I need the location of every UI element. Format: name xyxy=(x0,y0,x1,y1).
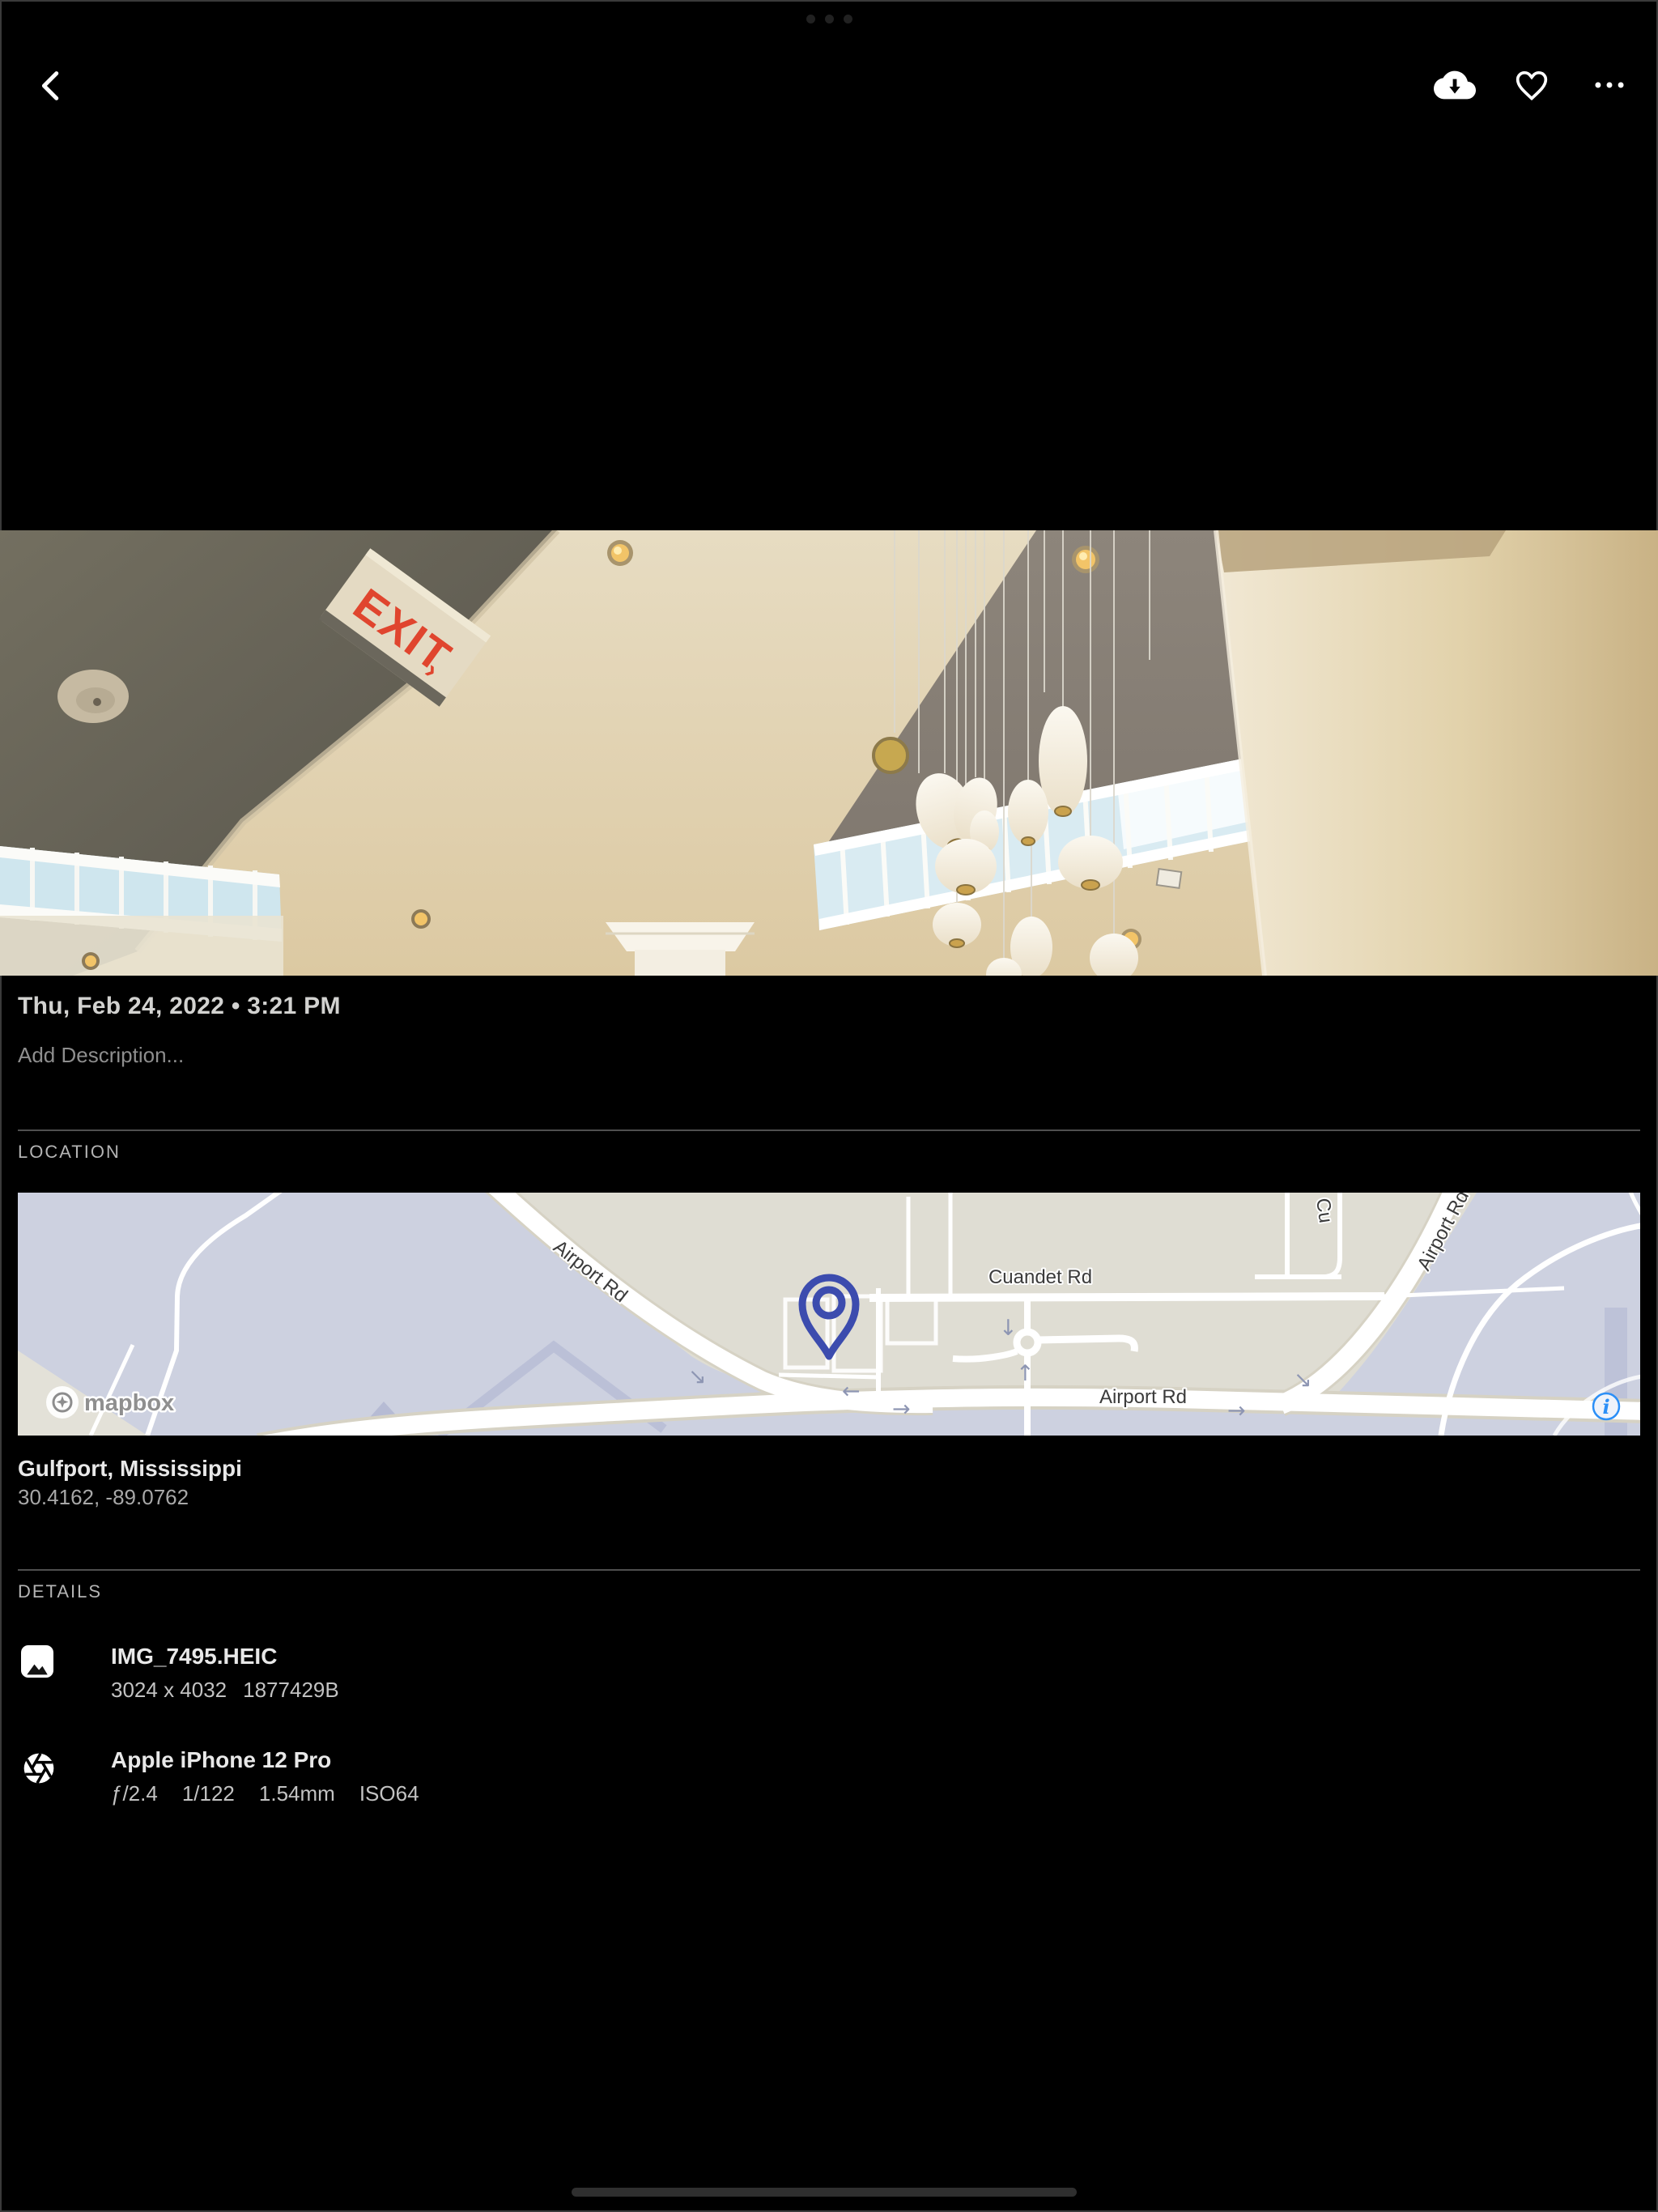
chevron-left-icon xyxy=(33,67,70,104)
details-header: DETAILS xyxy=(18,1581,102,1602)
photo-date: Thu, Feb 24, 2022 • 3:21 PM xyxy=(18,993,341,1020)
svg-text:↘: ↘ xyxy=(688,1364,707,1389)
wall-speaker xyxy=(1157,869,1182,888)
description-input[interactable]: Add Description... xyxy=(18,1043,184,1068)
svg-text:↑: ↑ xyxy=(1016,1361,1035,1386)
mapbox-logo[interactable]: mapbox xyxy=(46,1386,174,1419)
road-label: Cuandet Rd xyxy=(988,1266,1092,1288)
home-indicator[interactable] xyxy=(572,2188,1077,2197)
more-options-button[interactable] xyxy=(1580,56,1639,114)
location-coordinates: 30.4162, -89.0762 xyxy=(18,1485,189,1510)
photo-detail-screen: EXIT › xyxy=(0,0,1658,2212)
camera-name: Apple iPhone 12 Pro xyxy=(111,1747,331,1773)
atrium-column xyxy=(1216,530,1658,976)
camera-icon xyxy=(21,1750,57,1790)
svg-text:mapbox: mapbox xyxy=(84,1390,174,1416)
svg-text:↓: ↓ xyxy=(999,1316,1018,1341)
camera-aperture: ƒ/2.4 xyxy=(111,1781,158,1806)
back-button[interactable] xyxy=(23,57,81,115)
map-info-button[interactable]: i xyxy=(1593,1393,1619,1419)
location-place: Gulfport, Mississippi xyxy=(18,1456,242,1482)
camera-specs: ƒ/2.4 1/122 1.54mm ISO64 xyxy=(111,1781,419,1806)
file-size: 1877429B xyxy=(243,1678,339,1703)
ellipsis-icon xyxy=(1588,64,1630,106)
svg-text:←: ← xyxy=(842,1379,861,1404)
location-header: LOCATION xyxy=(18,1142,121,1163)
svg-text:i: i xyxy=(1602,1395,1609,1419)
location-map[interactable]: ←→ ↑↓ ↘→ ↘ Airport Rd Cuandet Rd Airport… xyxy=(18,1193,1640,1436)
divider xyxy=(18,1569,1640,1571)
camera-iso: ISO64 xyxy=(359,1781,419,1806)
road-label: Cu xyxy=(1312,1197,1337,1224)
image-file-icon xyxy=(21,1645,53,1678)
divider xyxy=(18,1129,1640,1131)
cloud-download-icon xyxy=(1434,64,1476,106)
heart-icon xyxy=(1511,64,1553,106)
ceiling-medallion xyxy=(874,738,908,772)
road-label: Airport Rd xyxy=(1099,1386,1187,1408)
svg-text:→: → xyxy=(1227,1398,1246,1423)
svg-text:↘: ↘ xyxy=(1294,1368,1312,1393)
file-meta: 3024 x 4032 1877429B xyxy=(111,1678,339,1703)
camera-shutter: 1/122 xyxy=(182,1781,235,1806)
file-dimensions: 3024 x 4032 xyxy=(111,1678,227,1703)
camera-focal-length: 1.54mm xyxy=(259,1781,335,1806)
file-name: IMG_7495.HEIC xyxy=(111,1644,277,1670)
favorite-button[interactable] xyxy=(1503,56,1561,114)
download-button[interactable] xyxy=(1426,56,1484,114)
multitasking-indicator xyxy=(0,15,1658,23)
svg-text:→: → xyxy=(892,1397,911,1422)
smoke-detector xyxy=(57,670,129,723)
photo-image[interactable]: EXIT › xyxy=(0,530,1658,976)
